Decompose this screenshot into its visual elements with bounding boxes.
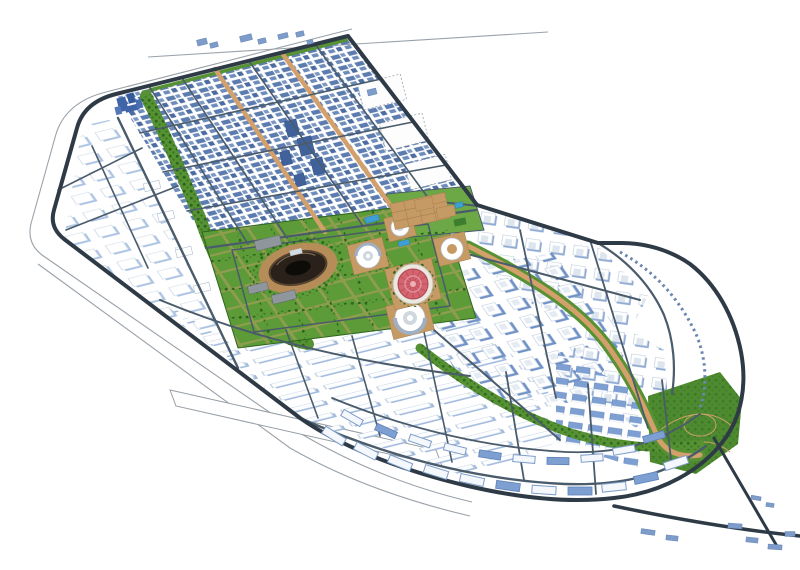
city-master-plan-rendering xyxy=(0,0,800,570)
